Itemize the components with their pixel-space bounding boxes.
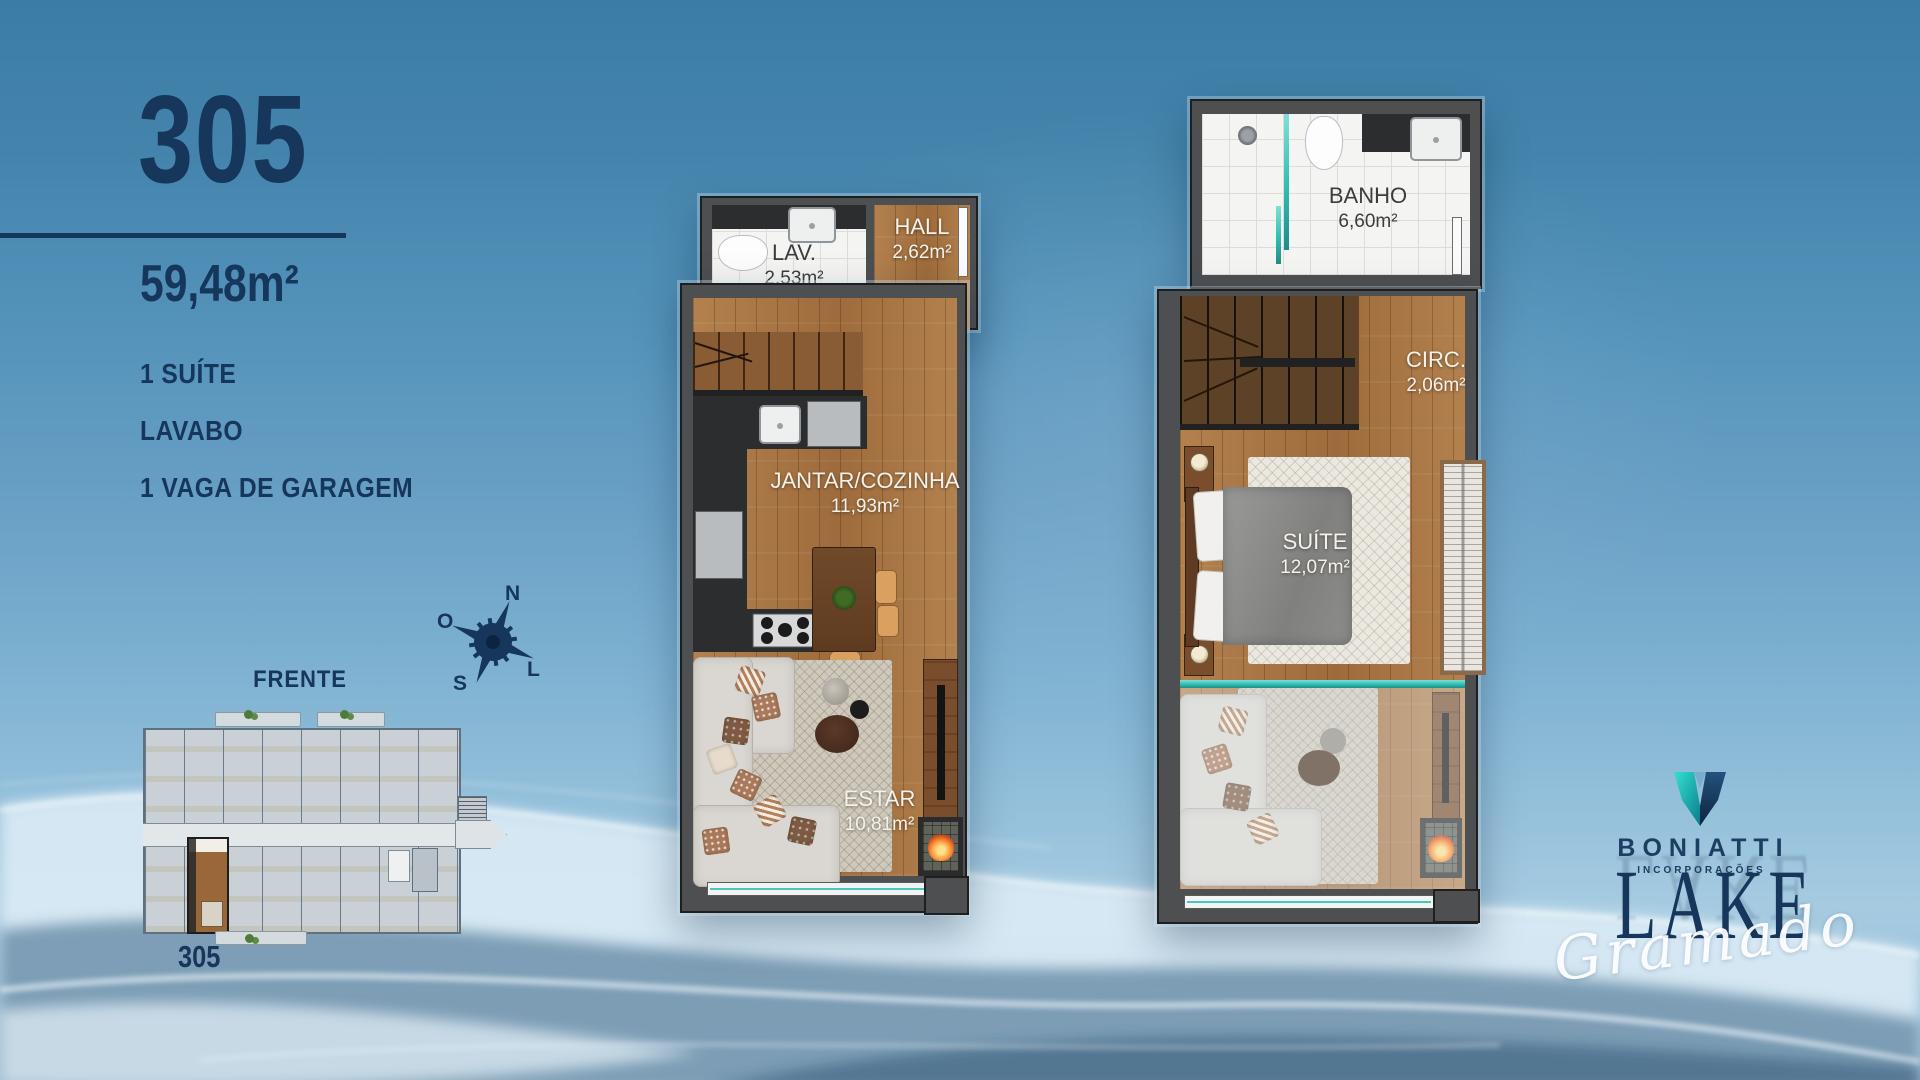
stairs-down: [693, 332, 863, 396]
compass-north: N: [505, 582, 520, 606]
fridge: [807, 401, 861, 447]
void-fade: [1180, 688, 1465, 889]
coffee-table-gray: [822, 678, 849, 705]
table-plant-icon: [832, 586, 856, 610]
lower-floor-body: JANTAR/COZINHA 11,93m² ESTAR 10,81m²: [680, 283, 967, 913]
keyplan-stairs: [458, 796, 487, 823]
room-label-estar: ESTAR 10,81m²: [812, 785, 947, 836]
kitchen-counter-top: [693, 396, 867, 449]
dining-table: [812, 547, 876, 652]
kitchen-counter-side: [693, 449, 747, 652]
feature-lavabo: LAVABO: [140, 415, 243, 447]
frente-label: FRENTE: [208, 666, 392, 694]
stair-line: [695, 353, 749, 368]
keyplan-balcony: [317, 712, 385, 727]
entry-door: [958, 207, 968, 277]
sofa-pillow: [751, 692, 782, 723]
key-plan: 305: [140, 698, 510, 978]
floor-plan-lower: LAV. 2,53m² HALL 2,62m²: [680, 196, 978, 913]
banho-room: BANHO 6,60m²: [1202, 114, 1470, 275]
keyplan-unit-305-highlight: [187, 837, 229, 934]
compass-rose: N O S L: [433, 576, 558, 706]
floor-plan-upper: BANHO 6,60m² CIRC. 2: [1157, 92, 1483, 924]
compass-east: L: [527, 658, 540, 682]
banho-toilet: [1305, 116, 1343, 170]
coffee-table-brown: [815, 715, 859, 753]
feature-suite: 1 SUÍTE: [140, 358, 236, 390]
lav-sink: [788, 207, 836, 243]
sofa-pillow: [721, 716, 750, 745]
upper-floor-interior: CIRC. 2,06m² SUÍTE: [1180, 296, 1465, 889]
compass-star-icon: [433, 576, 558, 706]
keyplan-unit-label: 305: [178, 941, 220, 972]
lamp-icon: [1190, 453, 1209, 472]
room-label-hall: HALL 2,62m²: [874, 213, 970, 264]
stove-icon: [747, 609, 821, 652]
room-label-circ: CIRC. 2,06m²: [1376, 346, 1496, 397]
sofa-pillow: [701, 826, 730, 855]
stair-rail: [1240, 358, 1355, 367]
divider-line: [0, 233, 346, 238]
keyplan-balcony: [215, 712, 301, 727]
dining-chair: [875, 570, 897, 604]
keyplan-service-room: [388, 850, 410, 882]
keyplan-plant-icon: [244, 710, 253, 719]
dining-chair: [877, 605, 899, 637]
wardrobe: [1440, 460, 1486, 675]
unit-number: 305: [138, 78, 308, 202]
keyplan-unit-bed: [201, 901, 223, 927]
coffee-table-black: [850, 700, 869, 719]
feature-garagem: 1 VAGA DE GARAGEM: [140, 472, 413, 504]
living-window: [707, 882, 927, 896]
keyplan-plant-icon: [340, 710, 349, 719]
wall-protrusion: [1433, 889, 1480, 923]
project-logo: LAKE LAKE Gramado: [1545, 845, 1845, 1045]
kitchen-sink: [759, 405, 801, 444]
mezzanine-railing: [1180, 680, 1465, 688]
poster: 305 59,48m² 1 SUÍTE LAVABO 1 VAGA DE GAR…: [0, 0, 1920, 1080]
room-label-suite: SUÍTE 12,07m²: [1240, 528, 1390, 579]
upper-floor-body: CIRC. 2,06m² SUÍTE: [1157, 289, 1478, 924]
keyplan-plant-icon: [245, 934, 254, 943]
keyplan-balcony: [215, 931, 307, 945]
compass-west: O: [437, 610, 453, 634]
stair-line: [1184, 368, 1258, 402]
banho-sink: [1410, 117, 1462, 161]
stairs-up: [1180, 296, 1359, 430]
lamp-icon: [1190, 645, 1209, 664]
kitchen-tall-unit: [695, 511, 743, 579]
keyplan-walkway: [455, 820, 507, 849]
shower-head-icon: [1238, 126, 1257, 145]
stove-counter: [747, 609, 821, 652]
banho-door: [1452, 217, 1462, 275]
banho-block: BANHO 6,60m²: [1190, 99, 1482, 289]
unit-area: 59,48m²: [140, 258, 299, 310]
keyplan-elevator: [412, 848, 438, 892]
void-living-view: [1180, 688, 1465, 889]
tv-icon: [937, 685, 945, 800]
room-label-banho: BANHO 6,60m²: [1288, 182, 1448, 233]
shower-glass: [1276, 206, 1281, 264]
lower-floor-interior: JANTAR/COZINHA 11,93m² ESTAR 10,81m²: [693, 298, 957, 876]
wall-protrusion: [924, 876, 969, 915]
suite-floor-window: [1184, 895, 1434, 909]
stair-rail: [1180, 424, 1359, 430]
boniatti-v-icon: [1668, 766, 1732, 828]
compass-south: S: [453, 672, 467, 696]
stair-line: [1184, 316, 1259, 348]
room-label-jantar-cozinha: JANTAR/COZINHA 11,93m²: [765, 467, 965, 518]
flame-icon: [928, 833, 954, 861]
